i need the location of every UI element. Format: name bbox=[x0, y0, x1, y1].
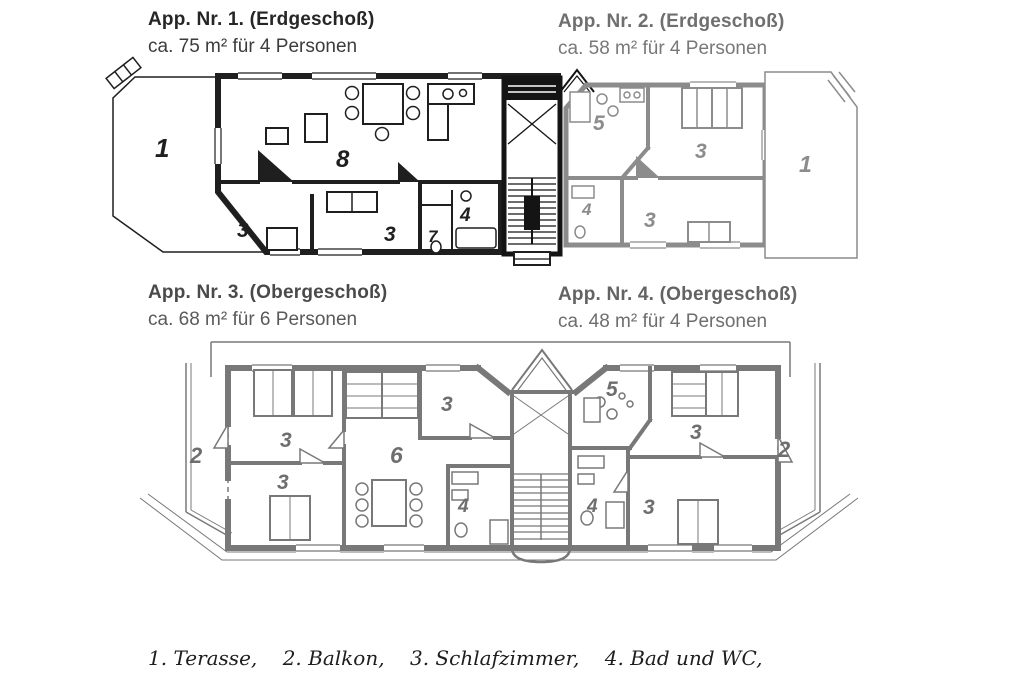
entrance-porch bbox=[508, 350, 576, 392]
room-label: 3 bbox=[644, 209, 656, 232]
room-label: 1 bbox=[799, 151, 812, 177]
room-legend: 1. Terasse, 2. Balkon, 3. Schlafzimmer, … bbox=[148, 588, 762, 683]
room-label: 5 bbox=[593, 112, 605, 135]
room-label: 3 bbox=[280, 429, 292, 452]
room-label: 3 bbox=[441, 393, 453, 416]
room-label: 5 bbox=[606, 378, 618, 401]
room-label: 3 bbox=[237, 219, 249, 242]
room-label: 6 bbox=[390, 442, 403, 468]
room-label: 4 bbox=[586, 496, 598, 517]
apartment3-furniture bbox=[254, 370, 508, 544]
upper-floor-plan: 2 3 3 3 6 4 5 3 4 3 2 bbox=[140, 342, 858, 562]
room-label: 3 bbox=[384, 223, 396, 246]
floorplan-drawing: 1 8 3 3 7 4 5 3 4 3 1 bbox=[0, 0, 1024, 683]
room-label: 3 bbox=[643, 496, 655, 519]
apartment1-furniture bbox=[266, 84, 496, 253]
ground-floor-plan: 1 8 3 3 7 4 5 3 4 3 1 bbox=[106, 57, 857, 265]
room-label: 8 bbox=[336, 146, 350, 173]
legend-line-1: 1. Terasse, 2. Balkon, 3. Schlafzimmer, … bbox=[148, 644, 762, 672]
floorplan-page: App. Nr. 1. (Erdgeschoß) ca. 75 m² für 4… bbox=[0, 0, 1024, 683]
room-label: 4 bbox=[457, 496, 469, 517]
room-label: 3 bbox=[690, 421, 702, 444]
room-label: 2 bbox=[777, 437, 791, 462]
stairwell-upper bbox=[512, 392, 570, 562]
room-label: 4 bbox=[459, 205, 471, 226]
room-label: 3 bbox=[277, 471, 289, 494]
room-label: 4 bbox=[581, 200, 592, 219]
room-label: 2 bbox=[189, 443, 203, 468]
room-label: 7 bbox=[428, 227, 439, 246]
room-label: 3 bbox=[695, 140, 707, 163]
room-label: 1 bbox=[155, 133, 169, 163]
